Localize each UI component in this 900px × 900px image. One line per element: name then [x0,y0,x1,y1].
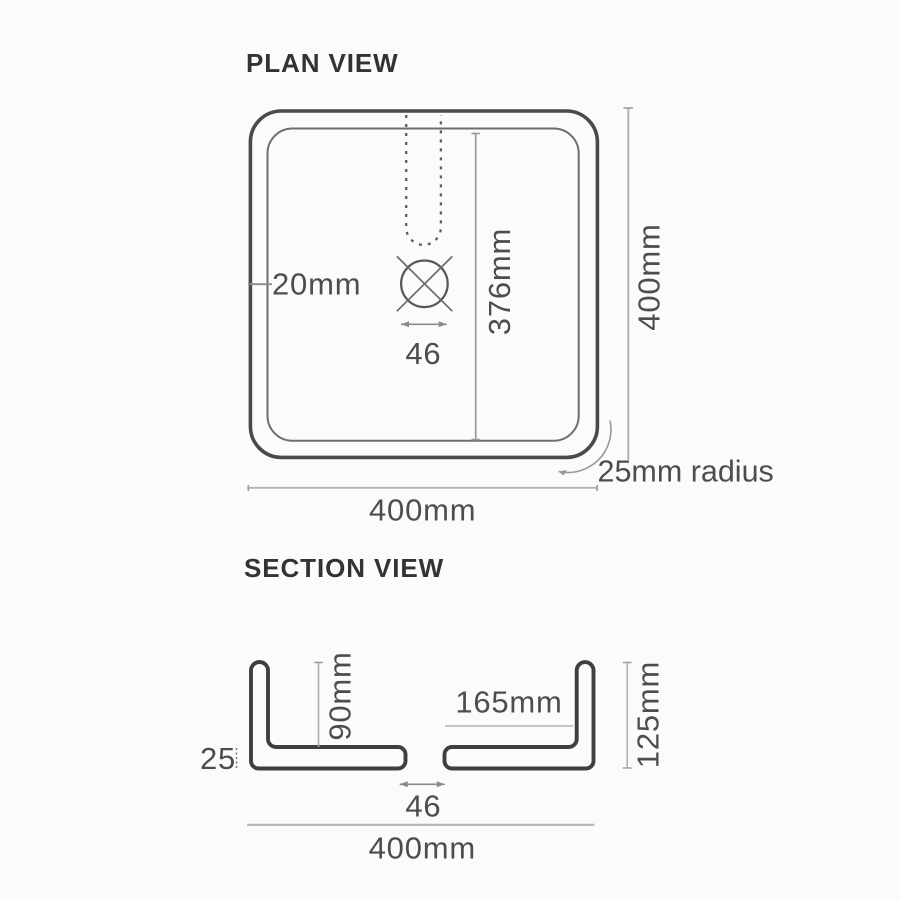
svg-text:46: 46 [405,336,441,371]
svg-text:376mm: 376mm [482,228,517,335]
svg-text:125mm: 125mm [631,661,666,768]
svg-text:165mm: 165mm [455,685,562,720]
svg-text:90mm: 90mm [323,651,358,740]
svg-text:400mm: 400mm [369,831,476,866]
svg-text:400mm: 400mm [369,493,476,528]
svg-text:25: 25 [200,741,236,776]
svg-text:25mm radius: 25mm radius [598,455,774,489]
svg-text:400mm: 400mm [632,223,667,330]
svg-text:PLAN VIEW: PLAN VIEW [246,48,399,78]
svg-text:46: 46 [405,789,441,824]
svg-text:SECTION VIEW: SECTION VIEW [244,553,444,583]
svg-text:20mm: 20mm [272,267,361,302]
